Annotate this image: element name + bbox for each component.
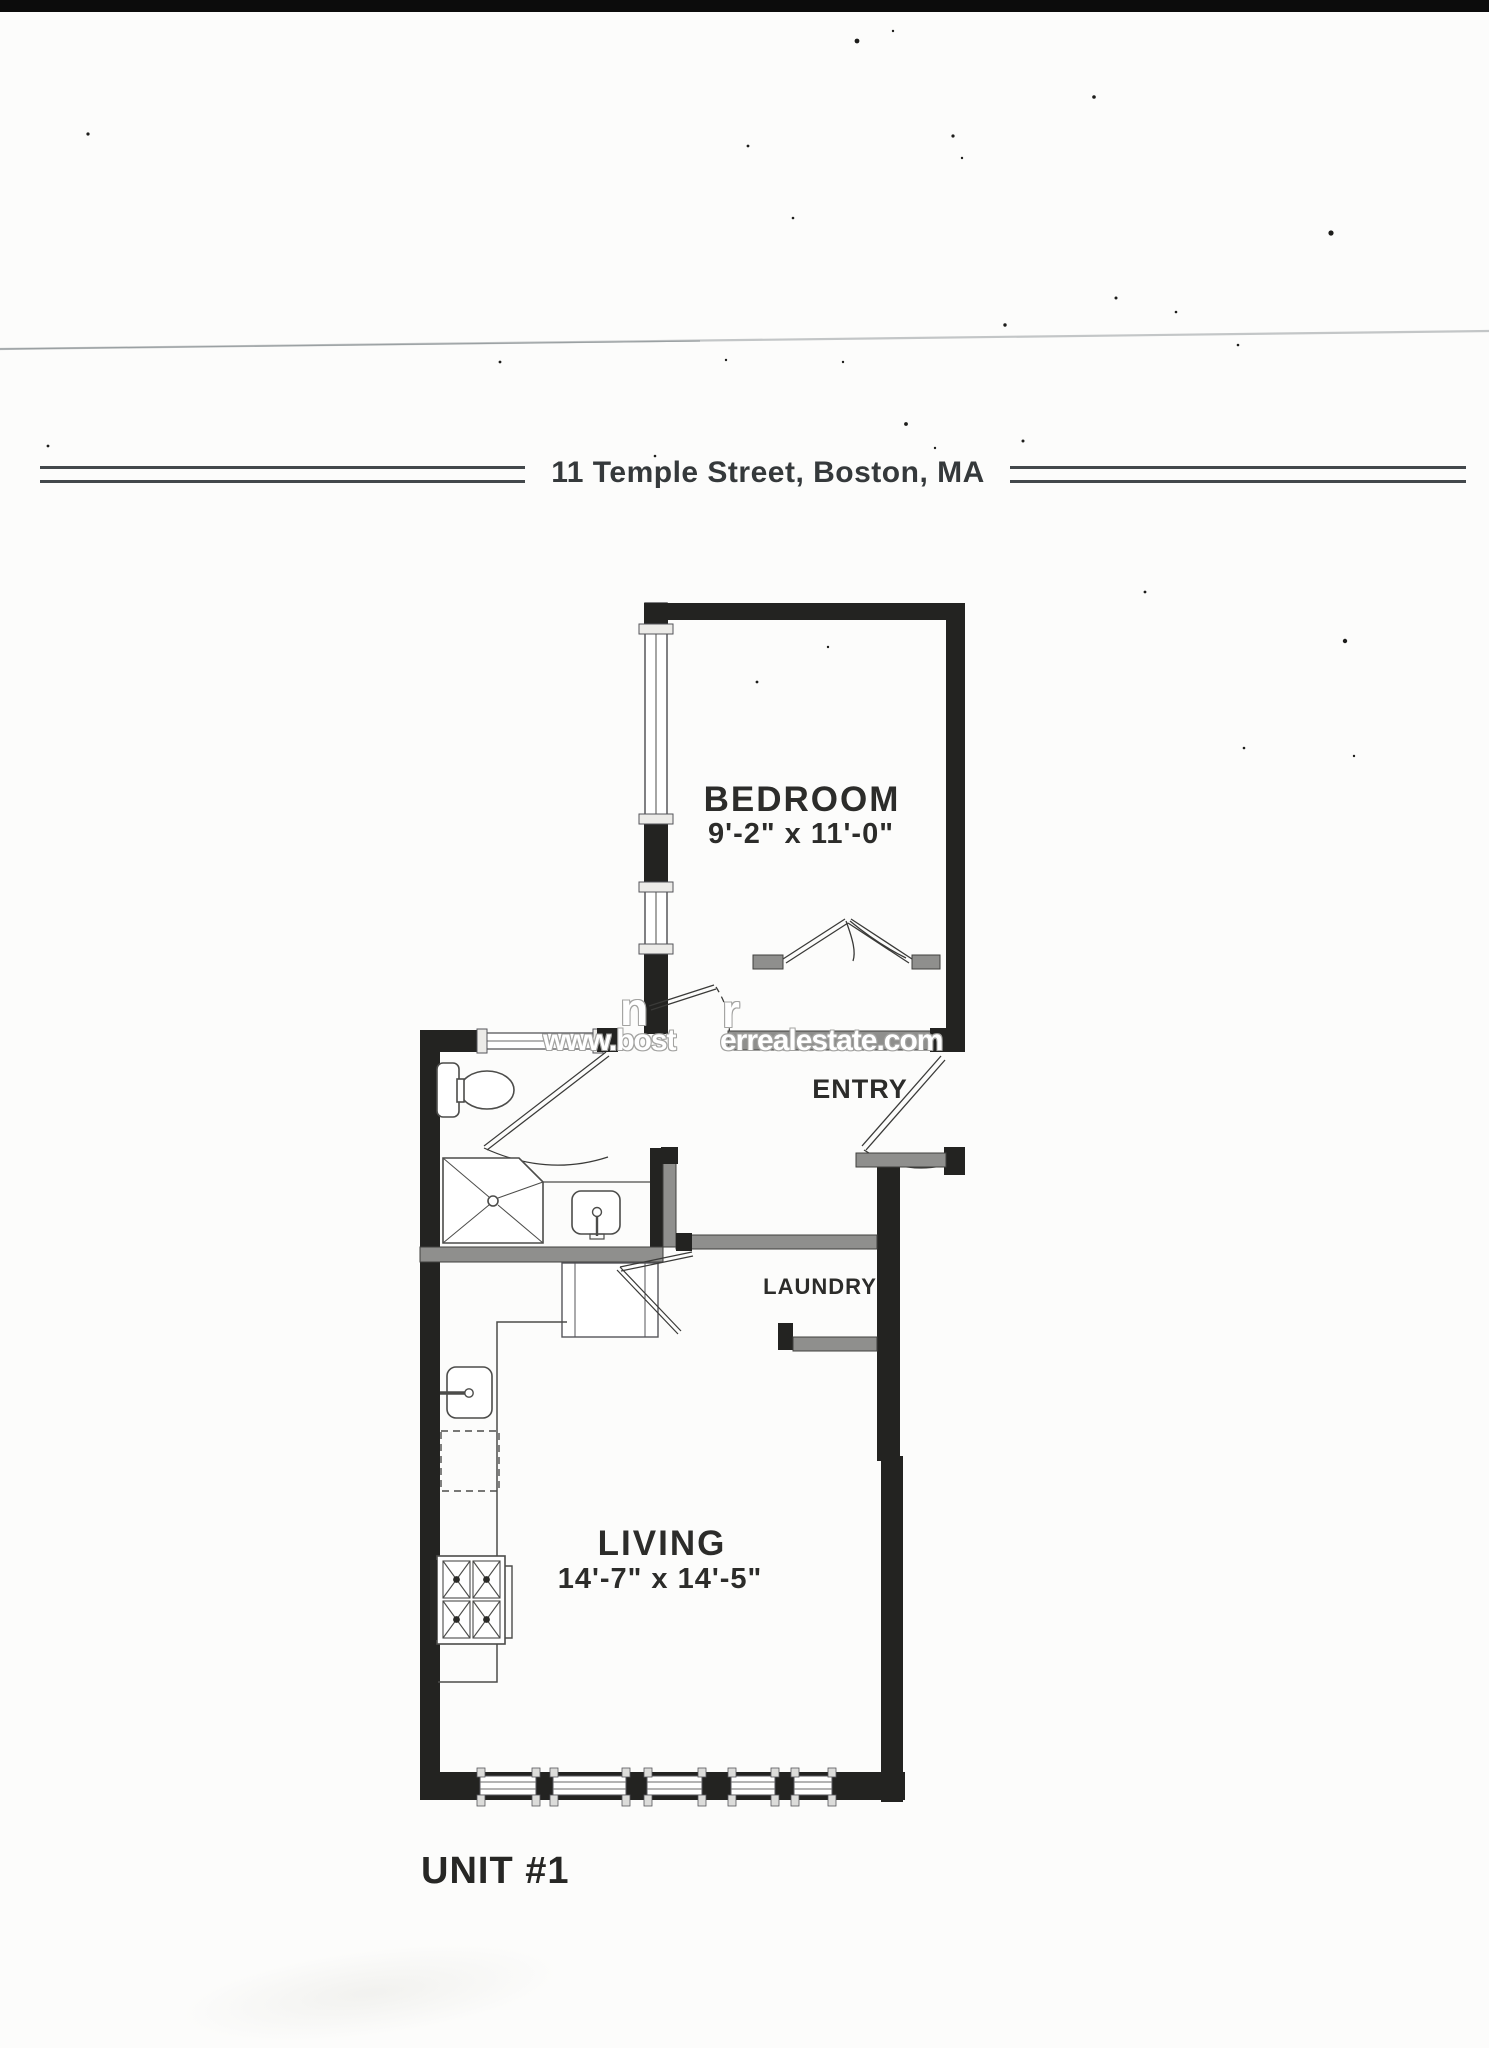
hall-closet bbox=[562, 1263, 658, 1337]
bedroom-window-wall bbox=[639, 603, 673, 1034]
living-label: LIVING bbox=[598, 1524, 727, 1564]
bathroom-sink bbox=[543, 1182, 650, 1239]
dishwasher bbox=[441, 1431, 499, 1491]
bedroom-french-doors bbox=[753, 919, 940, 969]
unit-label: UNIT #1 bbox=[421, 1850, 569, 1893]
watermark-url-right: errealestate.com bbox=[720, 1024, 942, 1058]
toilet bbox=[437, 1063, 514, 1117]
bedroom-label: BEDROOM bbox=[704, 780, 901, 820]
watermark-url-left: www.bost bbox=[543, 1024, 676, 1058]
scanned-floorplan-page: 11 Temple Street, Boston, MA bbox=[0, 0, 1489, 2048]
living-dimensions: 14'-7" x 14'-5" bbox=[558, 1563, 763, 1596]
kitchen-sink bbox=[440, 1367, 492, 1418]
shower bbox=[443, 1158, 543, 1243]
entry-door bbox=[862, 1056, 945, 1168]
entry-label: ENTRY bbox=[812, 1074, 908, 1105]
bathroom bbox=[420, 1028, 678, 1262]
kitchen bbox=[430, 1322, 567, 1682]
laundry-label: LAUNDRY bbox=[763, 1274, 877, 1300]
stove bbox=[430, 1556, 512, 1644]
bedroom-dimensions: 9'-2" x 11'-0" bbox=[708, 818, 894, 851]
